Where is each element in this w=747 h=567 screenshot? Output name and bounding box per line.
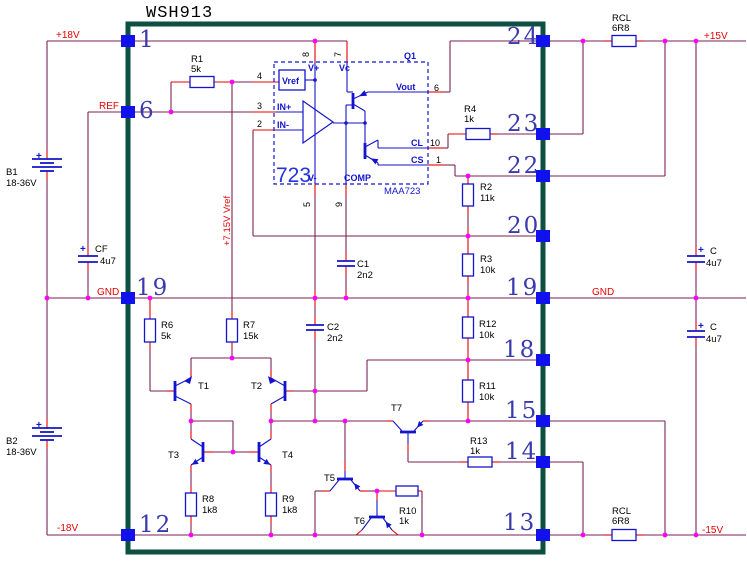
ic-pin-2: 2	[257, 119, 262, 129]
value-r6: 5k	[161, 331, 171, 342]
net-gnd-right: GND	[592, 287, 614, 298]
pin-label-13: 13	[503, 510, 536, 536]
value-r1: 5k	[191, 64, 201, 75]
polarity-b1: +	[36, 151, 42, 162]
pin-label-23: 23	[507, 111, 540, 137]
label-c2: C2	[327, 322, 339, 333]
ic-pin-6: 6	[434, 83, 439, 93]
transistor-t3	[191, 439, 203, 465]
module-outline	[128, 24, 543, 552]
label-b1: B1	[6, 167, 18, 178]
value-r13: 1k	[470, 446, 480, 457]
pin-13	[536, 529, 550, 541]
transistor-t6	[362, 500, 392, 530]
pin-label-12: 12	[139, 512, 172, 538]
value-r2: 11k	[480, 193, 495, 204]
value-c-top: 4u7	[706, 258, 722, 269]
ic-label-cs: CS	[411, 155, 424, 165]
ic-label-vplus: V+	[308, 63, 319, 73]
value-r4: 1k	[464, 114, 474, 125]
pin-label-15: 15	[505, 398, 538, 424]
net-gnd-left: GND	[97, 287, 119, 298]
pin-label-18: 18	[503, 337, 536, 363]
capacitor-c2	[306, 325, 324, 330]
pin-label-14: 14	[505, 439, 538, 465]
pin-19-left	[121, 292, 135, 304]
ic-label-in-minus: IN-	[277, 120, 289, 130]
pin-label-19-left: 19	[136, 275, 169, 301]
ic-label-cl: CL	[411, 138, 423, 148]
module-title: WSH913	[146, 4, 213, 23]
label-r12: R12	[479, 319, 496, 330]
schematic-canvas: WSH913 +18V REF GND -18V +15V GND -15V +…	[0, 0, 747, 567]
capacitor-c1	[337, 261, 355, 266]
ic-pin-10: 10	[430, 138, 440, 148]
value-r12: 10k	[479, 330, 495, 341]
value-c-bottom: 4u7	[706, 334, 722, 345]
net-plus18v: +18V	[56, 30, 80, 41]
label-r2: R2	[480, 182, 492, 193]
transistor-t1	[175, 376, 192, 404]
value-rcl-top: 6R8	[612, 23, 629, 34]
net-minus18v: -18V	[57, 523, 78, 534]
ic-pin-9: 9	[334, 202, 344, 207]
ic-label-vref: Vref	[282, 76, 300, 86]
label-r11: R11	[479, 381, 496, 392]
value-b1: 18-36V	[6, 178, 37, 189]
pin-18	[536, 354, 550, 366]
label-cf: CF	[95, 244, 108, 255]
text-labels: WSH913 +18V REF GND -18V +15V GND -15V +…	[6, 4, 728, 538]
polarity-c-top: +	[698, 245, 704, 256]
ic-label-in-plus: IN+	[277, 102, 291, 112]
value-r9: 1k8	[282, 505, 297, 516]
label-t3: T3	[168, 450, 179, 461]
value-cf: 4u7	[100, 256, 116, 267]
resistor-r1	[190, 77, 214, 88]
polarity-b2: +	[36, 420, 42, 431]
value-c1: 2n2	[357, 270, 373, 281]
label-c1: C1	[357, 259, 369, 270]
label-t1: T1	[198, 381, 209, 392]
pin-label-1: 1	[139, 27, 156, 53]
ic-pin-4: 4	[257, 71, 262, 81]
ic-label-vminus: V-	[308, 173, 317, 183]
resistor-r13	[468, 457, 492, 467]
resistor-r12	[463, 317, 474, 338]
label-c-top: C	[710, 246, 717, 257]
value-r11: 10k	[479, 392, 495, 403]
value-c2: 2n2	[327, 333, 343, 344]
capacitor-cf	[78, 256, 98, 262]
resistor-r11	[463, 380, 474, 402]
label-b2: B2	[6, 436, 18, 447]
resistor-r4	[466, 129, 490, 140]
label-c-bottom: C	[710, 322, 717, 333]
transistor-t2	[268, 376, 285, 404]
resistor-r9	[266, 493, 277, 516]
label-r8: R8	[202, 494, 214, 505]
pin-label-20: 20	[507, 213, 540, 239]
ic-pin-3: 3	[257, 101, 262, 111]
polarity-c-bottom: +	[698, 321, 704, 332]
pin-label-22: 22	[507, 153, 540, 179]
label-r3: R3	[480, 254, 492, 265]
pin-6	[121, 106, 135, 118]
value-rcl-bottom: 6R8	[612, 516, 629, 527]
value-r10: 1k	[399, 516, 409, 527]
pin-label-24: 24	[507, 24, 540, 50]
ic-label-723: 723	[276, 164, 311, 187]
net-minus15v: -15V	[702, 525, 723, 536]
net-ref: REF	[99, 101, 119, 112]
pin-label-6: 6	[139, 98, 156, 124]
label-t6: T6	[354, 516, 365, 527]
label-t7: T7	[391, 403, 402, 414]
transistor-t7	[393, 421, 423, 444]
resistor-r2	[463, 184, 474, 206]
ic-pin-1: 1	[436, 155, 441, 165]
resistor-rcl-top	[612, 36, 636, 47]
value-r8: 1k8	[202, 505, 217, 516]
label-t2: T2	[251, 381, 262, 392]
resistor-r3	[463, 254, 474, 276]
ic-label-maa723: MAA723	[384, 186, 420, 197]
label-r6: R6	[161, 320, 173, 331]
value-r7: 15k	[243, 331, 259, 342]
resistors	[145, 36, 637, 541]
capacitor-c-top	[687, 256, 705, 262]
ic-label-comp: COMP	[344, 173, 371, 183]
label-r9: R9	[282, 494, 294, 505]
label-t5: T5	[324, 473, 335, 484]
ic-pin-7: 7	[333, 52, 343, 57]
resistor-r10	[396, 486, 418, 496]
resistor-r7	[227, 319, 238, 342]
ic-label-q1: Q1	[404, 51, 416, 61]
transistor-t4	[259, 439, 271, 465]
value-b2: 18-36V	[6, 447, 37, 458]
ic-pin-8: 8	[301, 52, 311, 57]
resistor-rcl-bottom	[612, 530, 636, 541]
pin-label-19-right: 19	[506, 275, 539, 301]
net-plus15v: +15V	[704, 31, 728, 42]
pin-12	[121, 529, 135, 541]
polarity-cf: +	[80, 244, 86, 255]
opamp-triangle	[303, 101, 333, 143]
wsh913-schematic: WSH913 +18V REF GND -18V +15V GND -15V +…	[0, 0, 747, 567]
resistor-r8	[186, 493, 197, 516]
label-t4: T4	[282, 450, 293, 461]
ic-pin-5: 5	[302, 202, 312, 207]
resistor-r6	[145, 319, 156, 342]
label-r7: R7	[243, 320, 255, 331]
pin-1	[121, 35, 135, 47]
ic-label-vout: Vout	[396, 82, 415, 92]
net-vref-7v15: +7.15V Vref	[222, 196, 233, 246]
ic-label-vc: Vc	[339, 63, 350, 73]
value-r3: 10k	[480, 265, 496, 276]
